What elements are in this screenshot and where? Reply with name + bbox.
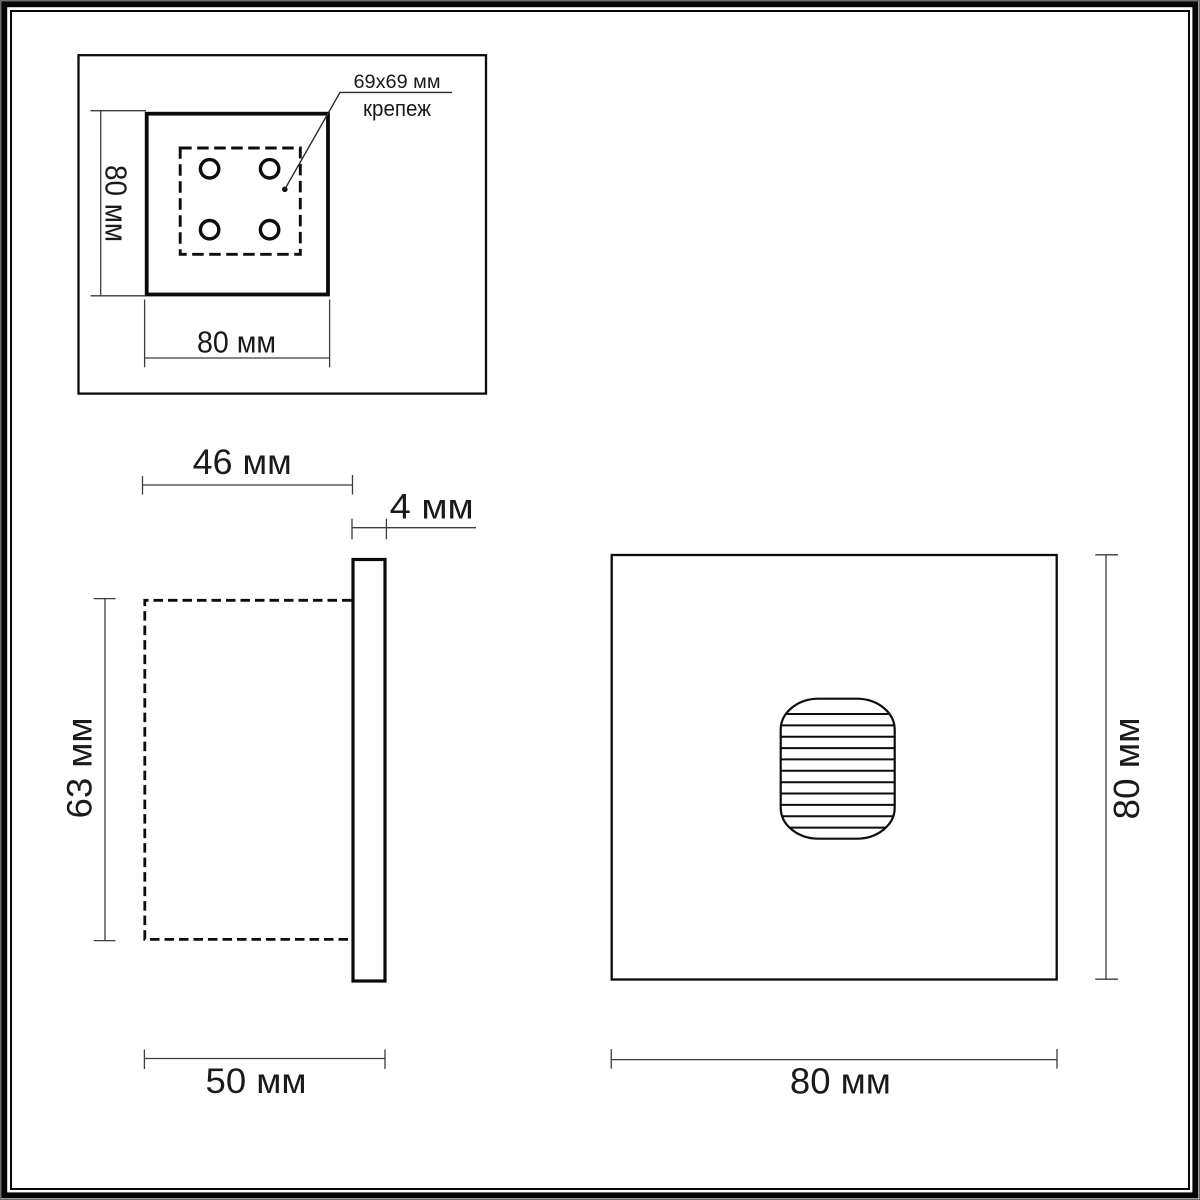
svg-text:80 мм: 80 мм [790,1061,891,1102]
svg-text:крепеж: крепеж [363,96,431,121]
svg-text:63 мм: 63 мм [61,718,100,819]
svg-text:80 мм: 80 мм [197,325,276,360]
svg-text:69x69 мм: 69x69 мм [354,71,441,93]
svg-text:46 мм: 46 мм [193,443,292,482]
svg-text:80 мм: 80 мм [1106,718,1147,820]
svg-text:50 мм: 50 мм [206,1062,307,1101]
svg-text:4 мм: 4 мм [390,488,474,527]
svg-text:80 мм: 80 мм [98,165,133,242]
